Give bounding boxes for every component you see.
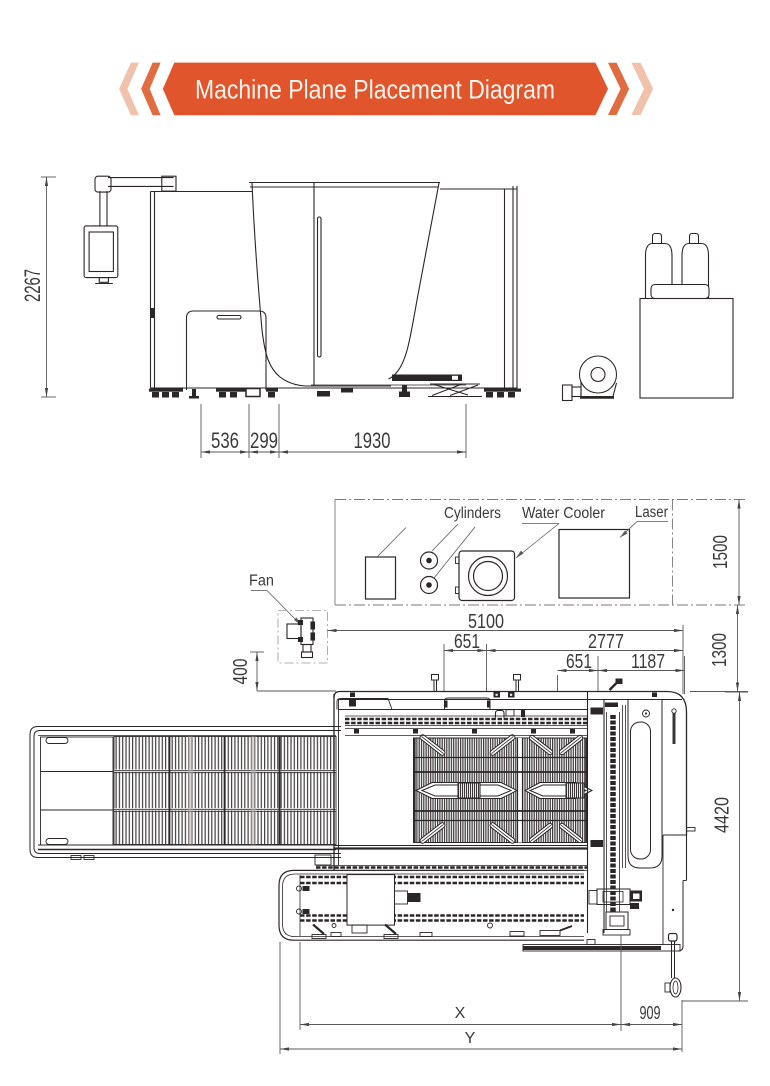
svg-text:2777: 2777 — [588, 631, 624, 653]
svg-text:1300: 1300 — [709, 633, 731, 667]
svg-text:X: X — [455, 1005, 466, 1022]
svg-text:1187: 1187 — [631, 651, 665, 673]
svg-text:651: 651 — [454, 631, 480, 653]
svg-text:909: 909 — [640, 1003, 661, 1023]
svg-text:Fan: Fan — [249, 573, 274, 590]
svg-text:651: 651 — [566, 651, 592, 673]
svg-text:Water Cooler: Water Cooler — [522, 505, 605, 522]
svg-text:4420: 4420 — [712, 797, 734, 833]
svg-text:5100: 5100 — [468, 611, 504, 633]
svg-text:Laser: Laser — [635, 504, 668, 521]
svg-text:2267: 2267 — [20, 269, 45, 302]
svg-text:1930: 1930 — [354, 428, 391, 453]
svg-text:Cylinders: Cylinders — [444, 505, 501, 522]
svg-text:1500: 1500 — [710, 535, 732, 569]
svg-text:Y: Y — [465, 1030, 476, 1047]
svg-text:400: 400 — [230, 659, 252, 685]
svg-text:299: 299 — [250, 428, 278, 453]
svg-text:Machine Plane Placement Diagra: Machine Plane Placement Diagram — [195, 75, 555, 105]
svg-text:536: 536 — [211, 428, 239, 453]
